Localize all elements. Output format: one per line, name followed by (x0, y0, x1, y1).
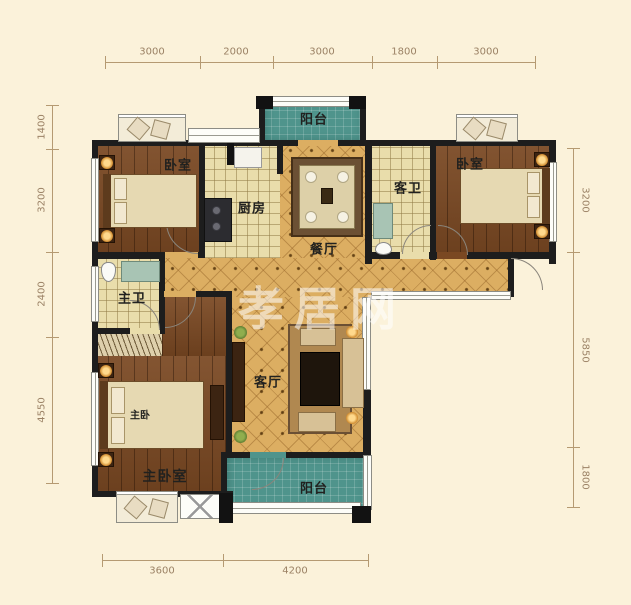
wall-balconyB-left (221, 452, 227, 497)
bed-headboard (542, 168, 550, 224)
dim-label-top: 2000 (214, 47, 258, 58)
dim-label-right: 1800 (580, 455, 591, 499)
lamp (101, 157, 113, 169)
label-master-bed: 主卧 (130, 407, 150, 422)
bed-pillow (111, 387, 125, 414)
ac-platform (180, 494, 220, 519)
stove-burner (212, 222, 221, 231)
dim-tick (46, 149, 59, 150)
dim-tick (46, 483, 59, 484)
dim-label-bottom: 4200 (273, 566, 317, 577)
dim-tick (437, 56, 438, 69)
wardrobe (97, 334, 162, 356)
bed-headboard (103, 174, 111, 228)
balcony-top-post-right (349, 96, 366, 109)
plate (305, 171, 317, 183)
wall-masterbath-top (95, 252, 162, 259)
label-guest-bath: 客卫 (394, 178, 422, 197)
dim-tick (273, 56, 274, 69)
wall-kitchen-dining-stub (277, 140, 283, 174)
plate (337, 211, 349, 223)
dim-tick (368, 554, 369, 567)
floorplan-page: { "floorplan": { "watermark": "孝居网", "ro… (0, 0, 631, 605)
dim-tick (567, 447, 580, 448)
label-bedroom-right: 卧室 (456, 154, 484, 173)
stove-burner (212, 206, 221, 215)
bed-headboard (100, 381, 108, 449)
balcony-bottom-post-right (352, 506, 371, 523)
plate (305, 211, 317, 223)
wall-living-right-lower (363, 388, 371, 458)
dim-tick (567, 252, 580, 253)
lamp (536, 154, 548, 166)
dim-label-top: 3000 (300, 47, 344, 58)
dim-tick (535, 56, 536, 69)
dim-label-left: 4550 (37, 388, 48, 432)
lamp (101, 230, 113, 242)
label-master-bedroom: 主卧室 (143, 466, 188, 486)
armchair (298, 412, 336, 432)
dim-tick (372, 56, 373, 69)
dim-tick (567, 148, 580, 149)
dim-tick (567, 507, 580, 508)
label-bedroom-left: 卧室 (164, 155, 192, 174)
dim-line-top (105, 62, 535, 63)
guestbath-vanity (373, 203, 393, 239)
dim-label-right: 3200 (580, 178, 591, 222)
wall-living-bottom (223, 452, 371, 458)
dim-tick (223, 554, 224, 567)
dim-tick (102, 554, 103, 567)
balcony-top-window (265, 96, 360, 107)
bedroomTL-window (91, 158, 99, 242)
balcony-bottom-window (231, 502, 361, 514)
lamp (100, 454, 112, 466)
balcony-bottom-side-window (363, 455, 372, 510)
label-balcony-top: 阳台 (300, 109, 328, 128)
bed-pillow (527, 172, 540, 194)
dim-label-bottom: 3600 (140, 566, 184, 577)
dim-label-top: 3000 (464, 47, 508, 58)
label-balcony-bottom: 阳台 (300, 478, 328, 497)
dim-line-left (52, 105, 53, 483)
bed-pillow (114, 202, 127, 224)
dim-label-top: 1800 (382, 47, 426, 58)
masterbath-vanity (121, 261, 160, 282)
balcony-bottom-post-left (219, 493, 233, 523)
kitchen-window (188, 128, 260, 143)
dining-centerpiece (321, 188, 333, 204)
dim-label-top: 3000 (130, 47, 174, 58)
sofa (342, 338, 364, 408)
dim-tick (200, 56, 201, 69)
coffee-table (300, 352, 340, 406)
label-living: 客厅 (254, 372, 282, 391)
dim-label-left: 1400 (37, 105, 48, 149)
kitchen-cabinet (227, 143, 234, 165)
balcony-top-post-left (256, 96, 273, 109)
dim-line-right (573, 148, 574, 507)
bed-pillow (111, 417, 125, 444)
dim-line-bottom (102, 560, 368, 561)
masterbath-window (91, 266, 99, 322)
watermark: 孝居网 (238, 273, 406, 339)
floorplan: 阳台 卧室 厨房 餐厅 客卫 卧室 主卫 客厅 主卧 主卧室 阳台 孝居网 30… (0, 0, 631, 605)
entrance-door-arc (511, 258, 543, 290)
floor-lamp (346, 412, 358, 424)
dim-tick (46, 337, 59, 338)
dim-tick (46, 105, 59, 106)
dim-tick (105, 56, 106, 69)
fridge (234, 147, 262, 168)
wall-dining-guestbath (365, 140, 372, 264)
bedroomTR-window (549, 162, 557, 242)
kitchen-counter-stove (204, 198, 232, 242)
label-dining: 餐厅 (310, 239, 338, 258)
tv-cabinet (232, 342, 245, 422)
toilet (375, 242, 392, 255)
door-gap-balcony-top (298, 140, 338, 146)
plant (234, 430, 247, 443)
label-master-bath: 主卫 (118, 288, 146, 307)
dim-label-left: 3200 (37, 178, 48, 222)
dim-tick (46, 252, 59, 253)
lamp (100, 365, 112, 377)
lamp (536, 226, 548, 238)
bed-pillow (114, 178, 127, 200)
dim-label-left: 2400 (37, 272, 48, 316)
bed-pillow (527, 196, 540, 218)
label-kitchen: 厨房 (238, 198, 266, 217)
dim-label-right: 5850 (580, 328, 591, 372)
plate (337, 171, 349, 183)
dresser (210, 385, 224, 440)
